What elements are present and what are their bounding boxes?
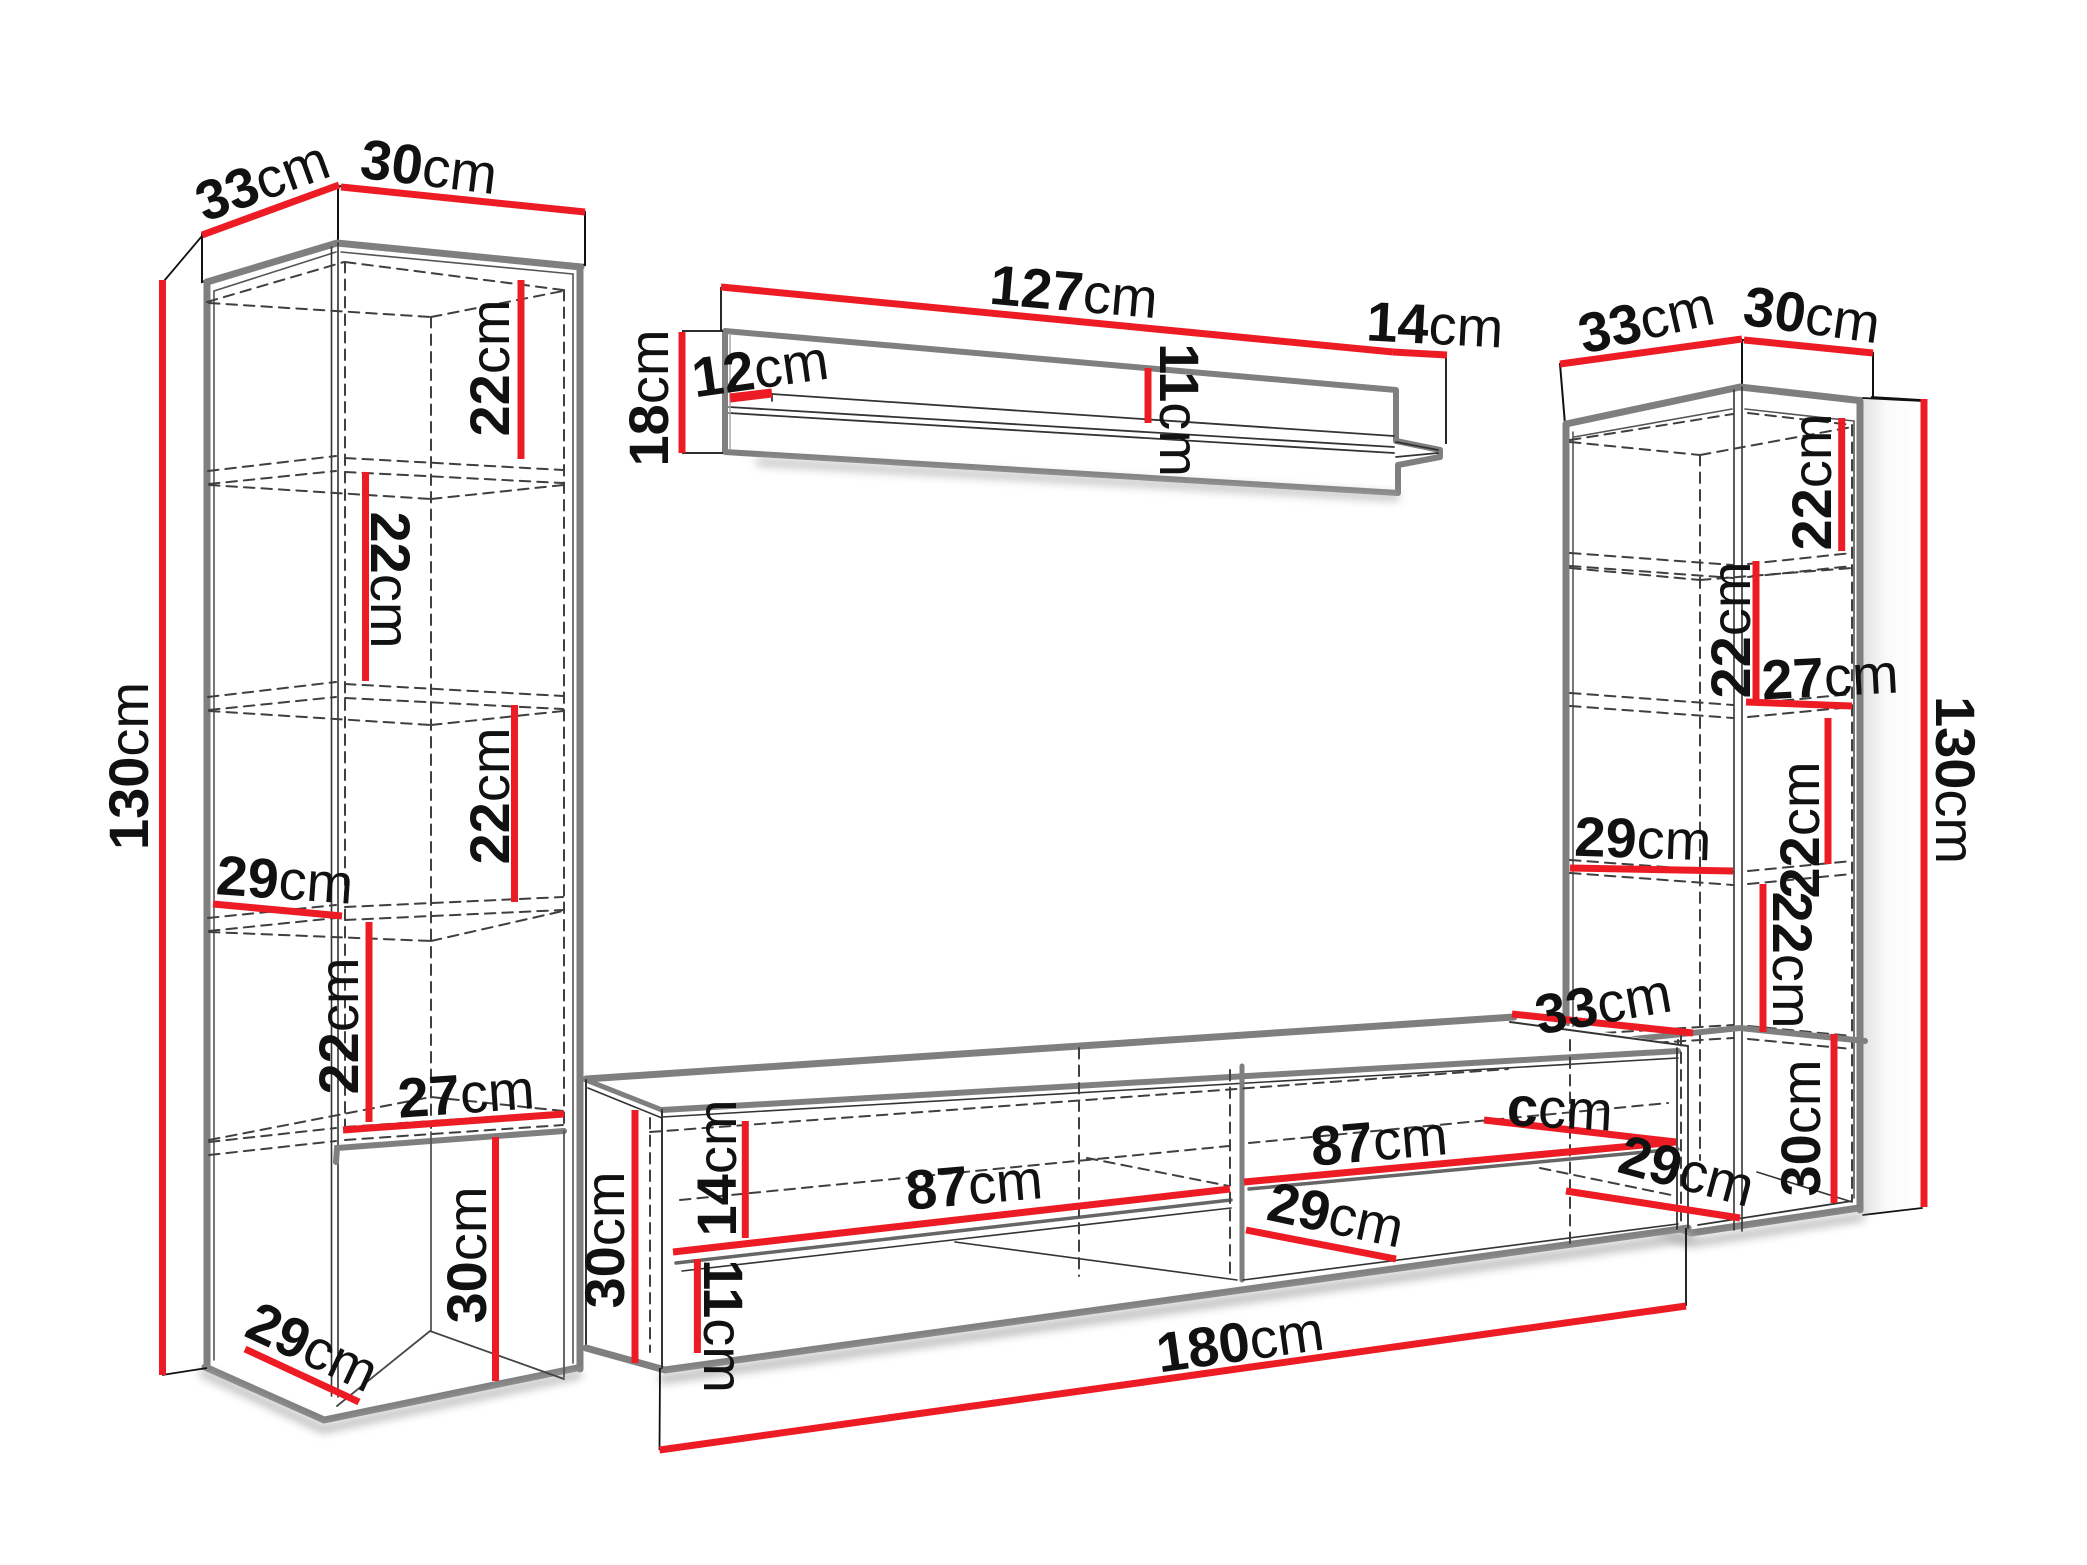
svg-text:ccm: ccm: [1505, 1074, 1614, 1142]
svg-text:30cm: 30cm: [1769, 1060, 1832, 1197]
svg-text:14cm: 14cm: [685, 1100, 748, 1237]
svg-text:87cm: 87cm: [1308, 1103, 1450, 1178]
svg-text:22cm: 22cm: [359, 512, 422, 649]
svg-text:18cm: 18cm: [617, 330, 680, 467]
svg-text:130cm: 130cm: [1924, 696, 1987, 864]
svg-text:29cm: 29cm: [1573, 805, 1712, 873]
svg-text:30cm: 30cm: [435, 1187, 498, 1324]
svg-text:22cm: 22cm: [1768, 762, 1831, 899]
svg-text:22cm: 22cm: [458, 300, 521, 437]
svg-text:22cm: 22cm: [307, 958, 370, 1095]
svg-text:29cm: 29cm: [214, 843, 355, 915]
svg-text:27cm: 27cm: [1760, 641, 1900, 711]
svg-text:22cm: 22cm: [458, 728, 521, 865]
svg-text:11cm: 11cm: [1148, 343, 1211, 477]
svg-text:22cm: 22cm: [1699, 562, 1762, 699]
svg-text:27cm: 27cm: [396, 1057, 537, 1129]
svg-text:14cm: 14cm: [1365, 289, 1505, 359]
svg-text:30cm: 30cm: [573, 1172, 636, 1309]
svg-text:22cm: 22cm: [1780, 414, 1843, 551]
svg-text:130cm: 130cm: [97, 682, 160, 850]
svg-text:22cm: 22cm: [1761, 892, 1824, 1029]
svg-text:11cm: 11cm: [692, 1259, 755, 1393]
svg-text:87cm: 87cm: [903, 1147, 1045, 1222]
